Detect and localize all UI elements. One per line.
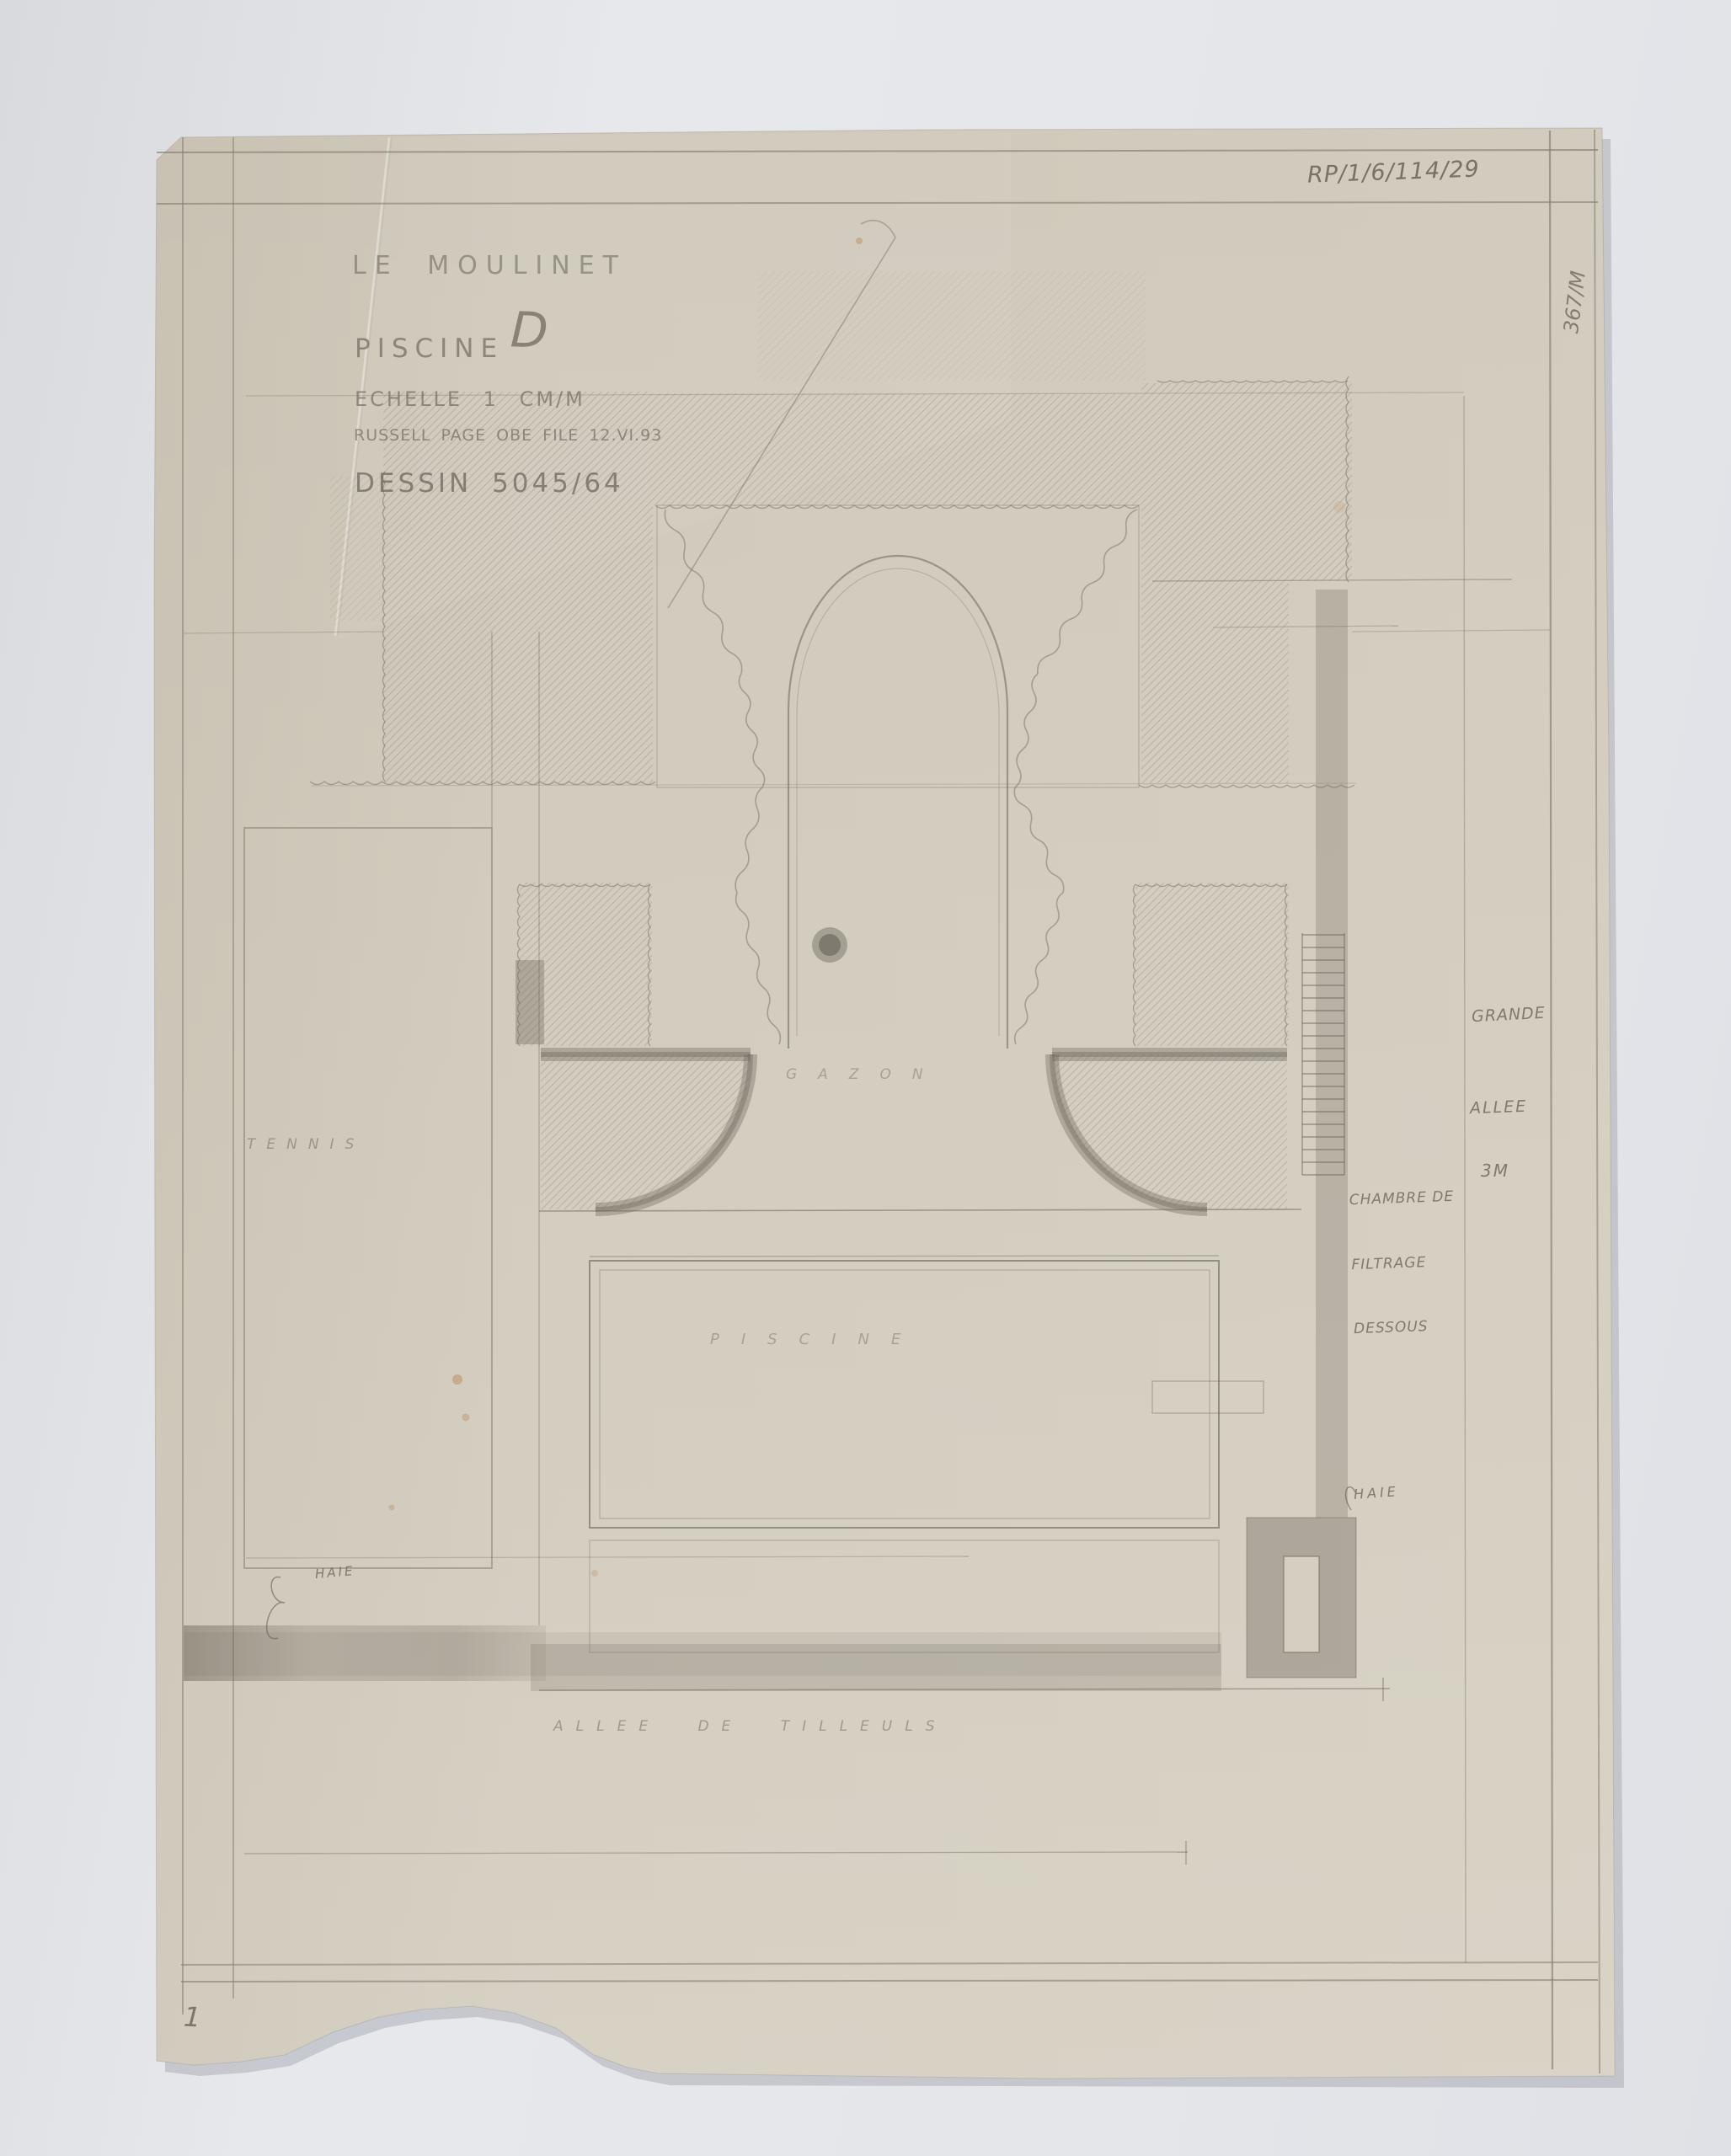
title-attribution: RUSSELL PAGE OBE FILE 12.VI.93: [354, 426, 662, 445]
title-drawing-letter: D: [510, 301, 549, 360]
title-scale: ECHELLE 1 CM/M: [355, 387, 585, 411]
path-wall-smudge: [516, 960, 544, 1044]
title-drawing-number: DESSIN 5045/64: [355, 468, 624, 499]
label-lime-avenue: ALLEE DE TILLEULS: [553, 1718, 947, 1735]
label-grande-allee-word2: ALLEE: [1470, 1097, 1528, 1118]
label-lawn: GAZON: [786, 1066, 944, 1083]
label-filter-room-line2: FILTRAGE: [1351, 1251, 1456, 1276]
page-number: 1: [183, 2000, 201, 2033]
label-filter-room-line1: CHAMBRE DE: [1349, 1187, 1454, 1212]
scanned-plan-sheet: LE MOULINET PISCINE D ECHELLE 1 CM/M RUS…: [0, 0, 1731, 2156]
label-hedge-right: HAIE: [1353, 1483, 1399, 1502]
label-filter-room-line3: DESSOUS: [1354, 1315, 1459, 1341]
label-allee-width: 3M: [1481, 1161, 1509, 1181]
label-pool: PISCINE: [710, 1331, 922, 1348]
label-filter-room: CHAMBRE DE FILTRAGE DESSOUS: [1348, 1144, 1460, 1362]
title-drawing-name: PISCINE: [355, 334, 504, 364]
title-project: LE MOULINET: [352, 251, 627, 280]
label-tennis: TENNIS: [247, 1136, 365, 1153]
label-grande-allee-word1: GRANDE: [1471, 1004, 1546, 1027]
